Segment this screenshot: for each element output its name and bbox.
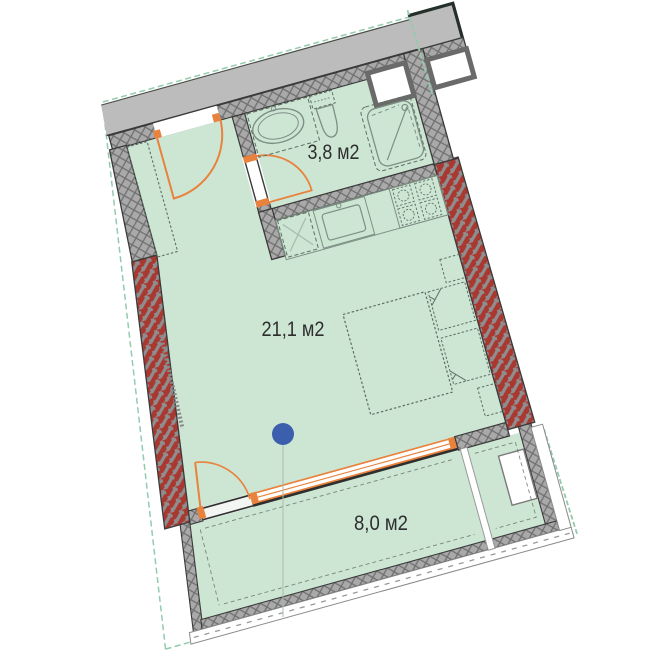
svg-text:8,0 м2: 8,0 м2	[354, 511, 408, 535]
svg-text:21,1 м2: 21,1 м2	[262, 317, 325, 341]
svg-text:3,8 м2: 3,8 м2	[308, 140, 360, 164]
